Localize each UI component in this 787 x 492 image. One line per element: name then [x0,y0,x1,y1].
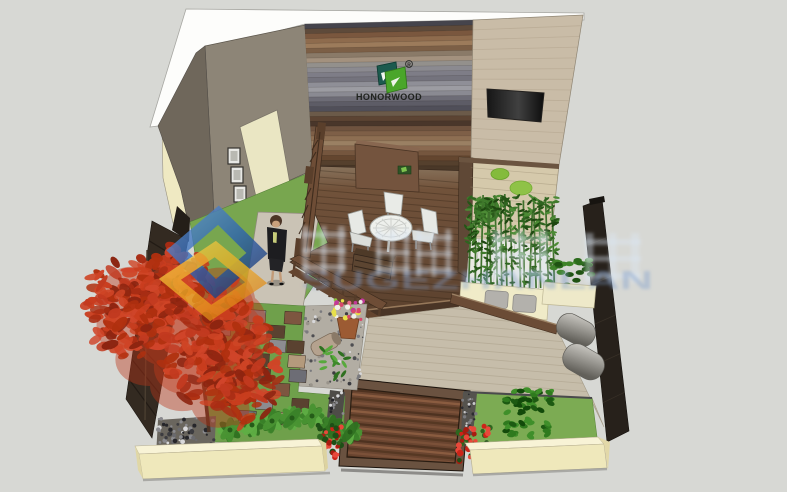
svg-text:R: R [407,63,411,69]
svg-text:SUGEZHANLAN: SUGEZHANLAN [301,265,653,295]
svg-text:HONORWOOD: HONORWOOD [356,92,422,102]
